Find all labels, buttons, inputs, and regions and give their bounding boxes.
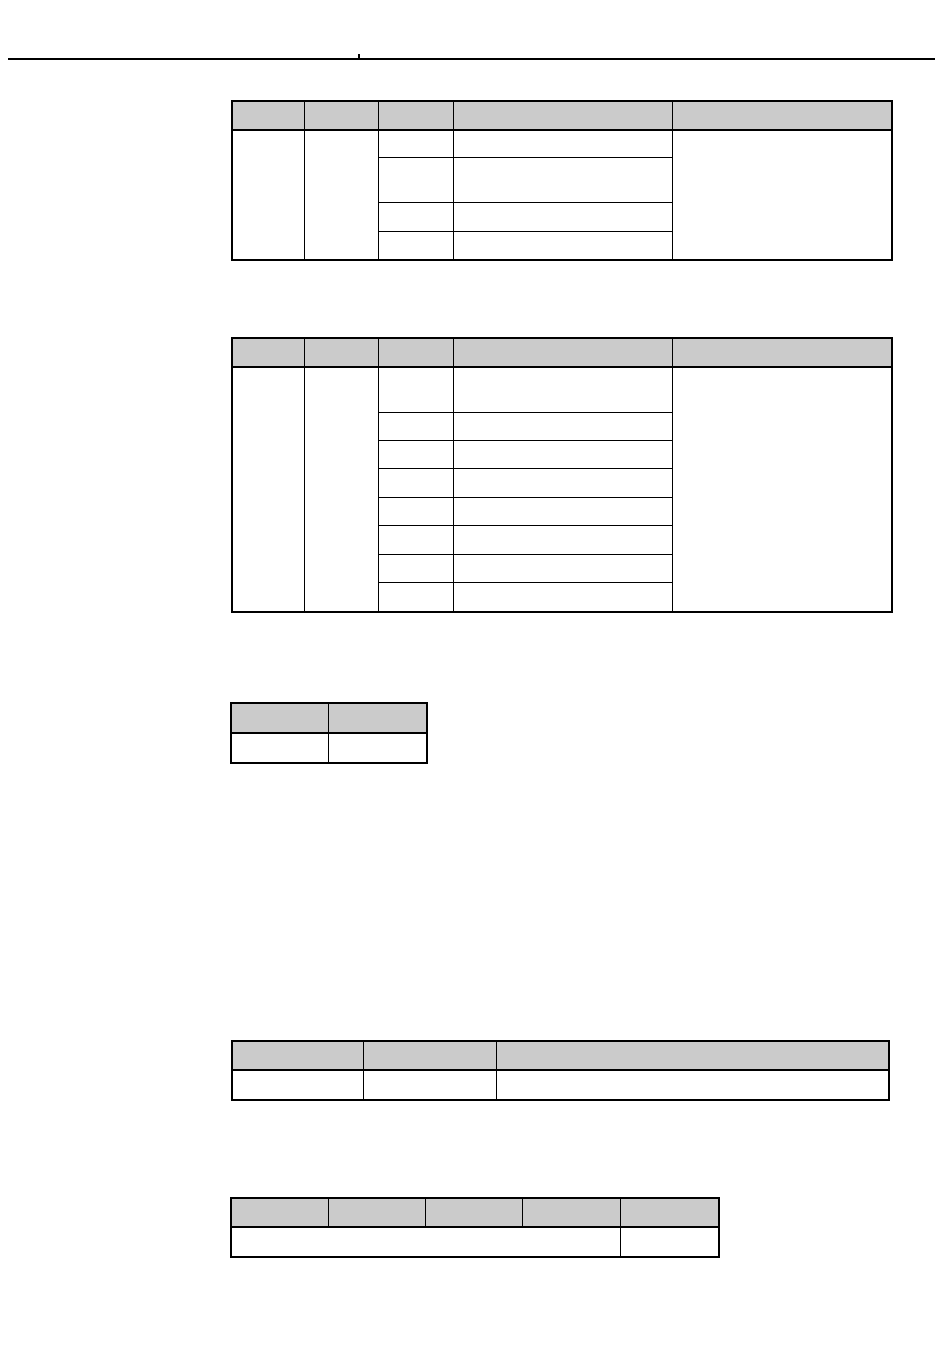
table-cell [454,130,673,158]
table-cell [305,130,379,260]
header-cell [305,101,379,130]
wide-table-3col [231,1040,890,1101]
table-cell [232,1070,364,1100]
table-cell [379,469,454,498]
small-table-2col-header-row [231,703,427,733]
header-cell [232,1041,364,1070]
table-cell [454,498,673,526]
header-cell [454,101,673,130]
header-cell [231,703,329,733]
header-cell [232,338,305,367]
header-cell [364,1041,497,1070]
parameter-table-1 [231,100,893,261]
table-row [232,130,892,158]
header-cell [673,338,893,367]
table-cell [379,130,454,158]
table-cell [231,733,329,763]
table-cell [454,469,673,498]
parameter-table-2-header-row [232,338,892,367]
table-cell [379,413,454,441]
table-cell [329,733,428,763]
table-cell [379,526,454,555]
header-cell [231,1198,329,1227]
header-cell [329,703,428,733]
table-row [232,367,892,413]
table-row [232,1070,889,1100]
table-cell [379,203,454,232]
table-cell [454,367,673,413]
header-cell [497,1041,890,1070]
header-cell [379,101,454,130]
document-page [0,0,950,1369]
small-table-2col [230,702,428,764]
table-cell [305,367,379,612]
table-cell [379,158,454,203]
header-cell [523,1198,621,1227]
table-cell [454,413,673,441]
table-row [231,1227,719,1257]
parameter-table-1-header-row [232,101,892,130]
bottom-table-5col [230,1197,720,1258]
header-cell [426,1198,523,1227]
header-cell [305,338,379,367]
table-cell [673,367,893,612]
table-cell [379,555,454,583]
table-cell [379,232,454,261]
table-cell [454,203,673,232]
header-rule-tick-mark [358,54,360,60]
header-cell [379,338,454,367]
table-cell [454,441,673,469]
table-cell [379,441,454,469]
table-cell [454,583,673,613]
header-cell [673,101,893,130]
header-cell [329,1198,426,1227]
header-cell [232,101,305,130]
table-cell [379,583,454,613]
table-cell [454,555,673,583]
table-cell [673,130,893,260]
table-cell [232,130,305,260]
header-cell [454,338,673,367]
table-cell [497,1070,890,1100]
table-cell [232,367,305,612]
parameter-table-2 [231,337,893,613]
wide-table-3col-header-row [232,1041,889,1070]
table-cell [379,367,454,413]
table-cell [231,1227,621,1257]
header-cell [621,1198,720,1227]
table-cell [621,1227,720,1257]
table-cell [454,526,673,555]
bottom-table-5col-header-row [231,1198,719,1227]
table-cell [379,498,454,526]
table-cell [454,232,673,261]
table-row [231,733,427,763]
table-cell [454,158,673,203]
table-cell [364,1070,497,1100]
page-header-rule [8,58,935,60]
